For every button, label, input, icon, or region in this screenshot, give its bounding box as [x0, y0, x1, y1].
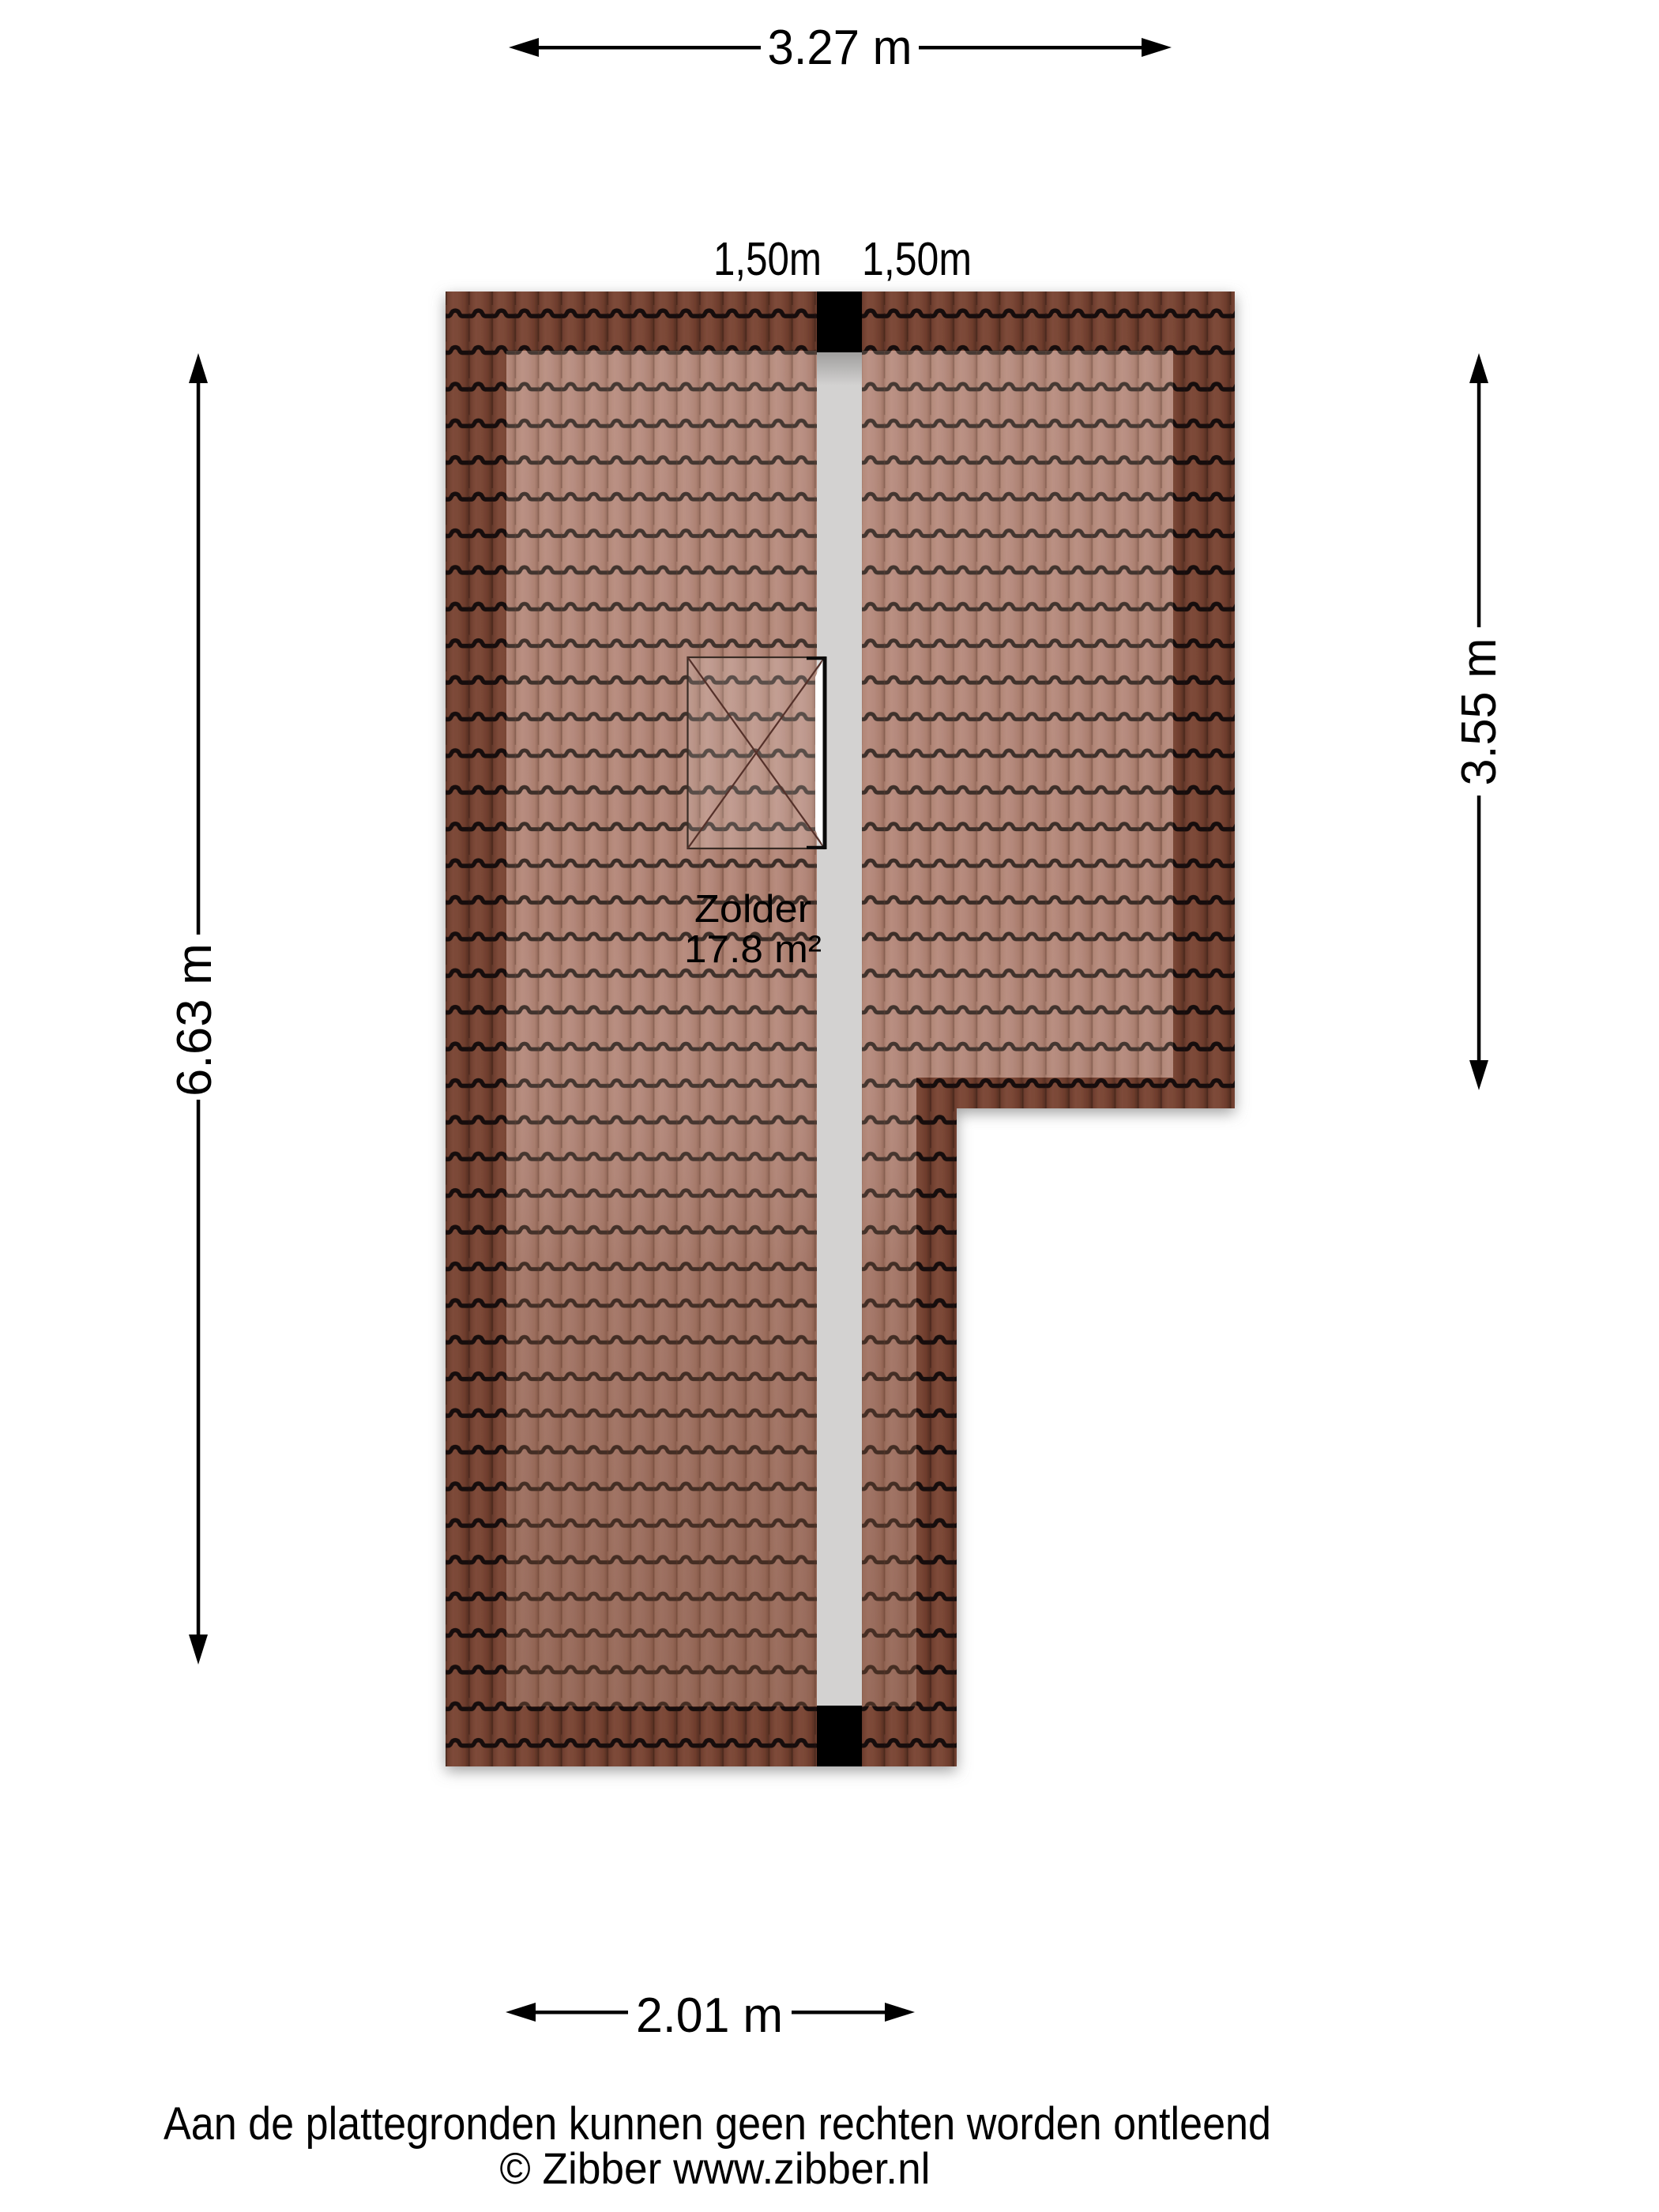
- svg-text:3.27 m: 3.27 m: [768, 21, 912, 75]
- svg-text:3.55 m: 3.55 m: [1452, 638, 1507, 786]
- svg-text:© Zibber www.zibber.nl: © Zibber www.zibber.nl: [500, 2143, 931, 2193]
- svg-text:Aan de plattegronden kunnen ge: Aan de plattegronden kunnen geen rechten…: [164, 2098, 1271, 2150]
- svg-text:1,50m: 1,50m: [713, 233, 822, 285]
- svg-text:2.01 m: 2.01 m: [636, 1988, 783, 2043]
- svg-text:Zolder: Zolder: [694, 888, 811, 931]
- svg-text:6.63 m: 6.63 m: [167, 943, 222, 1097]
- svg-text:17.8 m²: 17.8 m²: [684, 928, 822, 971]
- svg-text:1,50m: 1,50m: [862, 233, 972, 285]
